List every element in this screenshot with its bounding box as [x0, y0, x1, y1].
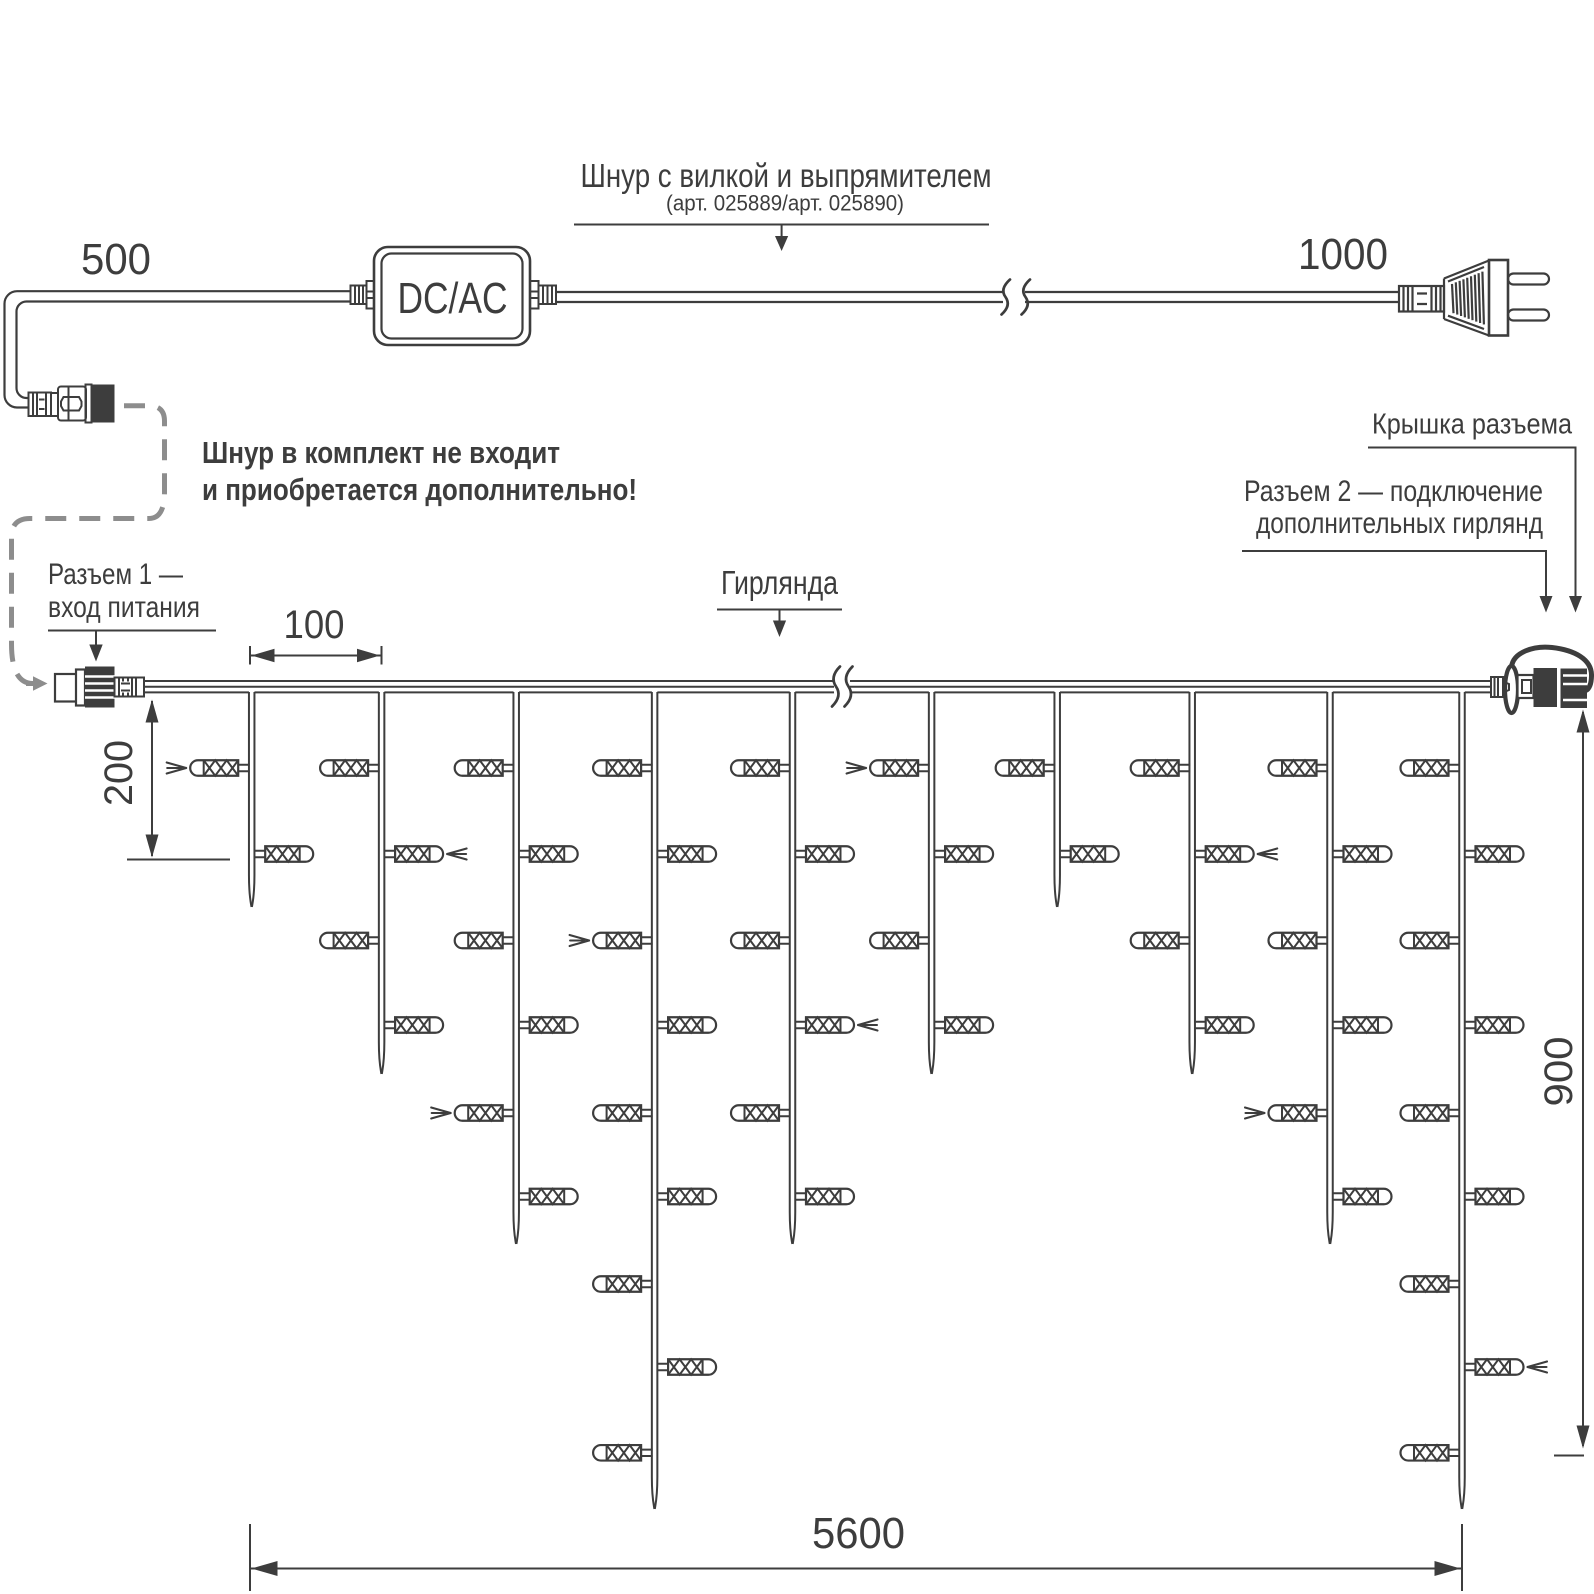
svg-text:500: 500: [81, 235, 151, 284]
svg-text:1000: 1000: [1298, 230, 1388, 279]
svg-text:100: 100: [284, 603, 345, 647]
svg-text:Гирлянда: Гирлянда: [721, 564, 839, 601]
svg-text:вход питания: вход питания: [48, 591, 200, 624]
svg-text:Шнур в комплект не входит: Шнур в комплект не входит: [202, 435, 560, 470]
svg-text:дополнительных гирлянд: дополнительных гирлянд: [1256, 507, 1543, 540]
svg-text:Разъем 2 — подключение: Разъем 2 — подключение: [1244, 475, 1543, 508]
svg-text:5600: 5600: [812, 1509, 905, 1558]
svg-text:900: 900: [1537, 1037, 1581, 1107]
svg-text:(арт. 025889/арт. 025890): (арт. 025889/арт. 025890): [666, 191, 904, 216]
svg-text:Шнур с вилкой и выпрямителем: Шнур с вилкой и выпрямителем: [581, 157, 992, 194]
svg-text:и приобретается дополнительно!: и приобретается дополнительно!: [202, 472, 637, 507]
svg-text:Разъем 1 —: Разъем 1 —: [48, 558, 183, 591]
svg-text:200: 200: [97, 740, 141, 806]
svg-text:Крышка разъема: Крышка разъема: [1372, 409, 1573, 441]
svg-text:DC/AC: DC/AC: [398, 274, 508, 323]
